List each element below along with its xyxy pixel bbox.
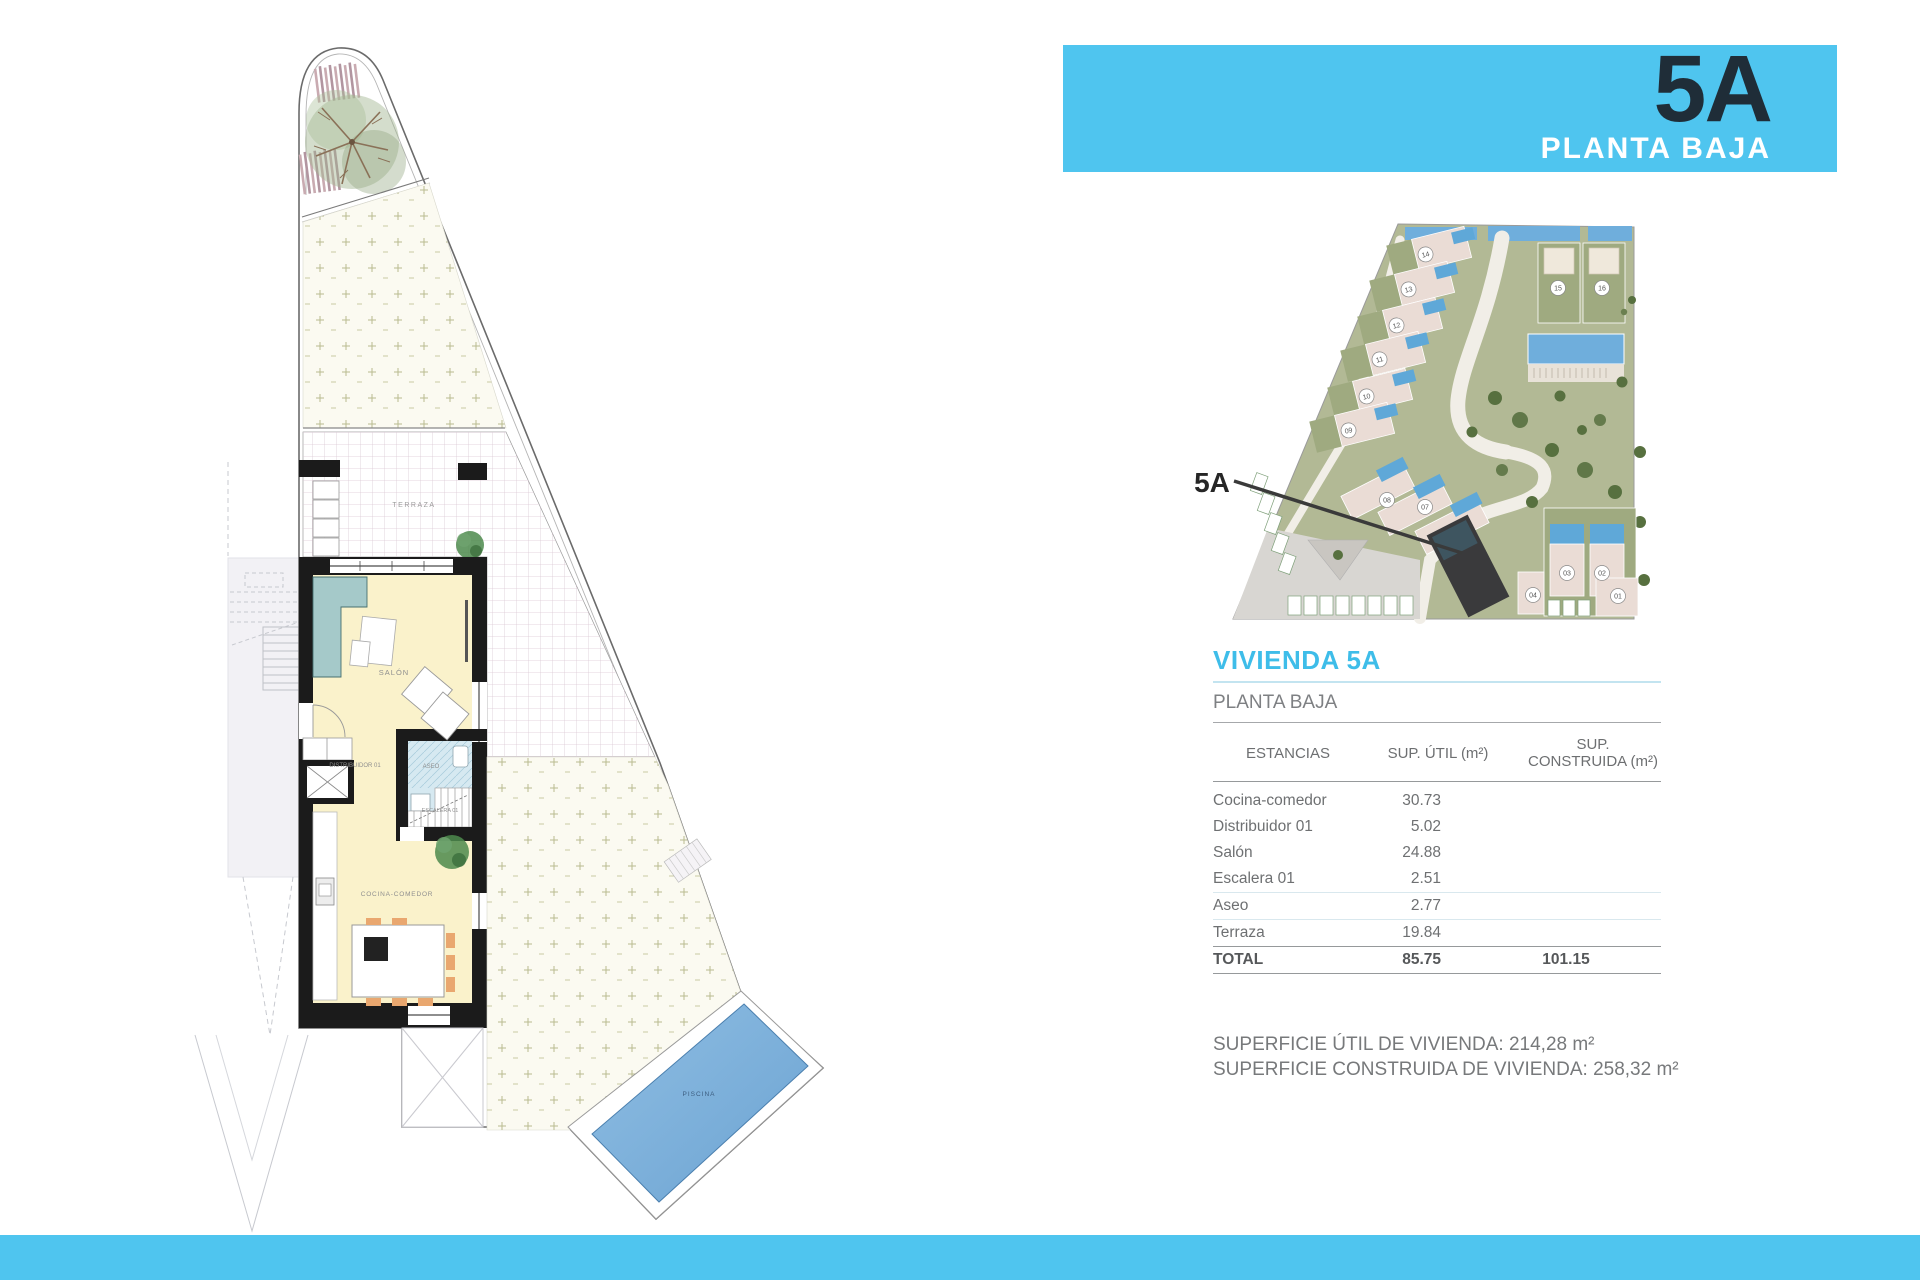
aseo-label: ASEO <box>423 764 440 770</box>
summary-util: SUPERFICIE ÚTIL DE VIVIENDA: 214,28 m² <box>1213 1032 1733 1057</box>
room-name: Cocina-comedor <box>1213 792 1363 810</box>
room-name: Aseo <box>1213 897 1363 915</box>
table-row: Salón 24.88 <box>1213 840 1661 866</box>
total-built: 101.15 <box>1441 951 1661 969</box>
panel-subtitle: PLANTA BAJA <box>1213 692 1661 714</box>
garden-upper <box>303 183 506 428</box>
table-total-row: TOTAL 85.75 101.15 <box>1213 947 1661 973</box>
divider <box>1213 973 1661 974</box>
unit-info-panel: VIVIENDA 5A PLANTA BAJA ESTANCIAS SUP. Ú… <box>1213 645 1661 974</box>
room-name: Distribuidor 01 <box>1213 818 1363 836</box>
cocina-label: COCINA-COMEDOR <box>361 891 434 898</box>
table-row: Terraza 19.84 <box>1213 920 1661 946</box>
room-name: Terraza <box>1213 924 1363 942</box>
piscina-label: PISCINA <box>682 1091 715 1098</box>
site-map: 14 13 12 11 10 09 15 16 <box>1190 205 1670 635</box>
table-row: Aseo 2.77 <box>1213 893 1661 919</box>
panel-title: VIVIENDA 5A <box>1213 645 1661 676</box>
service-area <box>402 1028 483 1127</box>
footer-bar <box>0 1235 1920 1280</box>
svg-text:16: 16 <box>1598 286 1606 293</box>
map-callout-label: 5A <box>1194 467 1230 498</box>
room-name: Salón <box>1213 844 1363 862</box>
room-name: Escalera 01 <box>1213 870 1363 888</box>
large-tree <box>305 90 406 194</box>
svg-text:02: 02 <box>1598 571 1606 578</box>
svg-text:15: 15 <box>1554 286 1562 293</box>
unit-number: 5A <box>1654 51 1771 129</box>
terraza-label: TERRAZA <box>392 502 435 509</box>
svg-text:01: 01 <box>1614 594 1622 601</box>
total-label: TOTAL <box>1213 951 1363 969</box>
divider <box>1213 681 1661 683</box>
room-util: 2.51 <box>1363 870 1441 888</box>
room-util: 2.77 <box>1363 897 1441 915</box>
surface-summary: SUPERFICIE ÚTIL DE VIVIENDA: 214,28 m² S… <box>1213 1032 1733 1082</box>
terrace-tree <box>456 531 484 559</box>
indoor-tree <box>435 835 469 869</box>
col-built: SUP. CONSTRUIDA (m²) <box>1513 736 1661 770</box>
summary-built: SUPERFICIE CONSTRUIDA DE VIVIENDA: 258,3… <box>1213 1057 1733 1082</box>
room-util: 24.88 <box>1363 844 1441 862</box>
escalera-label: ESCALERA 01 <box>422 808 459 814</box>
svg-text:03: 03 <box>1563 571 1571 578</box>
svg-text:07: 07 <box>1421 505 1429 512</box>
distribuidor-label: DISTRIBUIDOR 01 <box>329 763 381 769</box>
table-header: ESTANCIAS SUP. ÚTIL (m²) SUP. CONSTRUIDA… <box>1213 723 1661 781</box>
table-row: Distribuidor 01 5.02 <box>1213 814 1661 840</box>
col-util: SUP. ÚTIL (m²) <box>1363 745 1513 762</box>
svg-text:08: 08 <box>1383 498 1391 505</box>
header-banner: 5A PLANTA BAJA <box>1063 45 1837 172</box>
room-util: 19.84 <box>1363 924 1441 942</box>
site-houses-topright: 15 16 <box>1538 243 1636 323</box>
svg-text:04: 04 <box>1529 593 1537 600</box>
col-room: ESTANCIAS <box>1213 745 1363 762</box>
adjacent-unit-outline <box>195 462 308 1231</box>
table-row: Escalera 01 2.51 <box>1213 866 1661 892</box>
salon-label: SALÓN <box>379 668 409 677</box>
table-row: Cocina-comedor 30.73 <box>1213 788 1661 814</box>
room-util: 30.73 <box>1363 792 1441 810</box>
room-util: 5.02 <box>1363 818 1441 836</box>
community-pool <box>1528 334 1624 382</box>
floor-plan: TERRAZA <box>150 30 850 1240</box>
total-util: 85.75 <box>1363 951 1441 969</box>
floor-name: PLANTA BAJA <box>1541 132 1771 166</box>
